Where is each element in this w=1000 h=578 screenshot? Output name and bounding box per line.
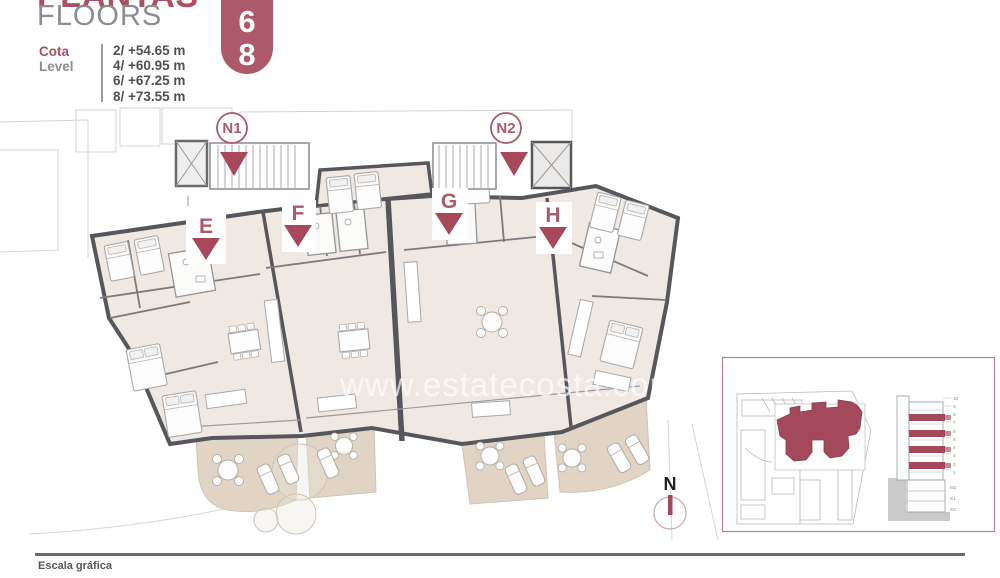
floor-plan-drawing: N1 N2 E F G H [0, 0, 1000, 578]
site-inset: 10 9 8 7 6 5 4 3 2 1 M2 S1 S2 [723, 358, 995, 532]
unit-label: G [441, 190, 457, 213]
elevation-floor-label: 8 [953, 412, 956, 418]
elevation-floor-label: 9 [953, 404, 956, 410]
unit-label: E [199, 215, 213, 238]
stair-core-n2 [433, 142, 571, 189]
unit-label: F [292, 202, 305, 225]
elevation-floor-label: 1 [953, 470, 956, 476]
elevation-floor-label: 3 [953, 453, 956, 459]
entry-marker-triangle [500, 152, 528, 176]
elevation-floor-label: 4 [953, 445, 956, 451]
elevation-floor-label: S2 [950, 507, 956, 513]
tree [276, 494, 316, 534]
unit-label: H [545, 204, 560, 227]
elevation-floor-label: 6 [953, 429, 956, 435]
elevation-floor-label: M2 [950, 485, 957, 491]
stairs [433, 143, 496, 189]
elevation-floor-label: 10 [953, 396, 959, 402]
scale-label: Escala gráfica [38, 560, 112, 572]
tree [254, 508, 278, 532]
node-label: N2 [496, 120, 515, 137]
scale-divider-line [35, 553, 965, 556]
north-label: N [664, 474, 677, 494]
watermark: www.estatecosta.com [340, 366, 670, 404]
elevation-floor-label: 7 [953, 420, 956, 426]
compass: N [654, 474, 686, 529]
elevation-floor-label: 2 [953, 462, 956, 468]
north-needle [668, 495, 673, 515]
elevation-floor-label: S1 [950, 496, 956, 502]
node-label: N1 [222, 120, 241, 137]
elevation-floor-label: 5 [953, 437, 956, 443]
